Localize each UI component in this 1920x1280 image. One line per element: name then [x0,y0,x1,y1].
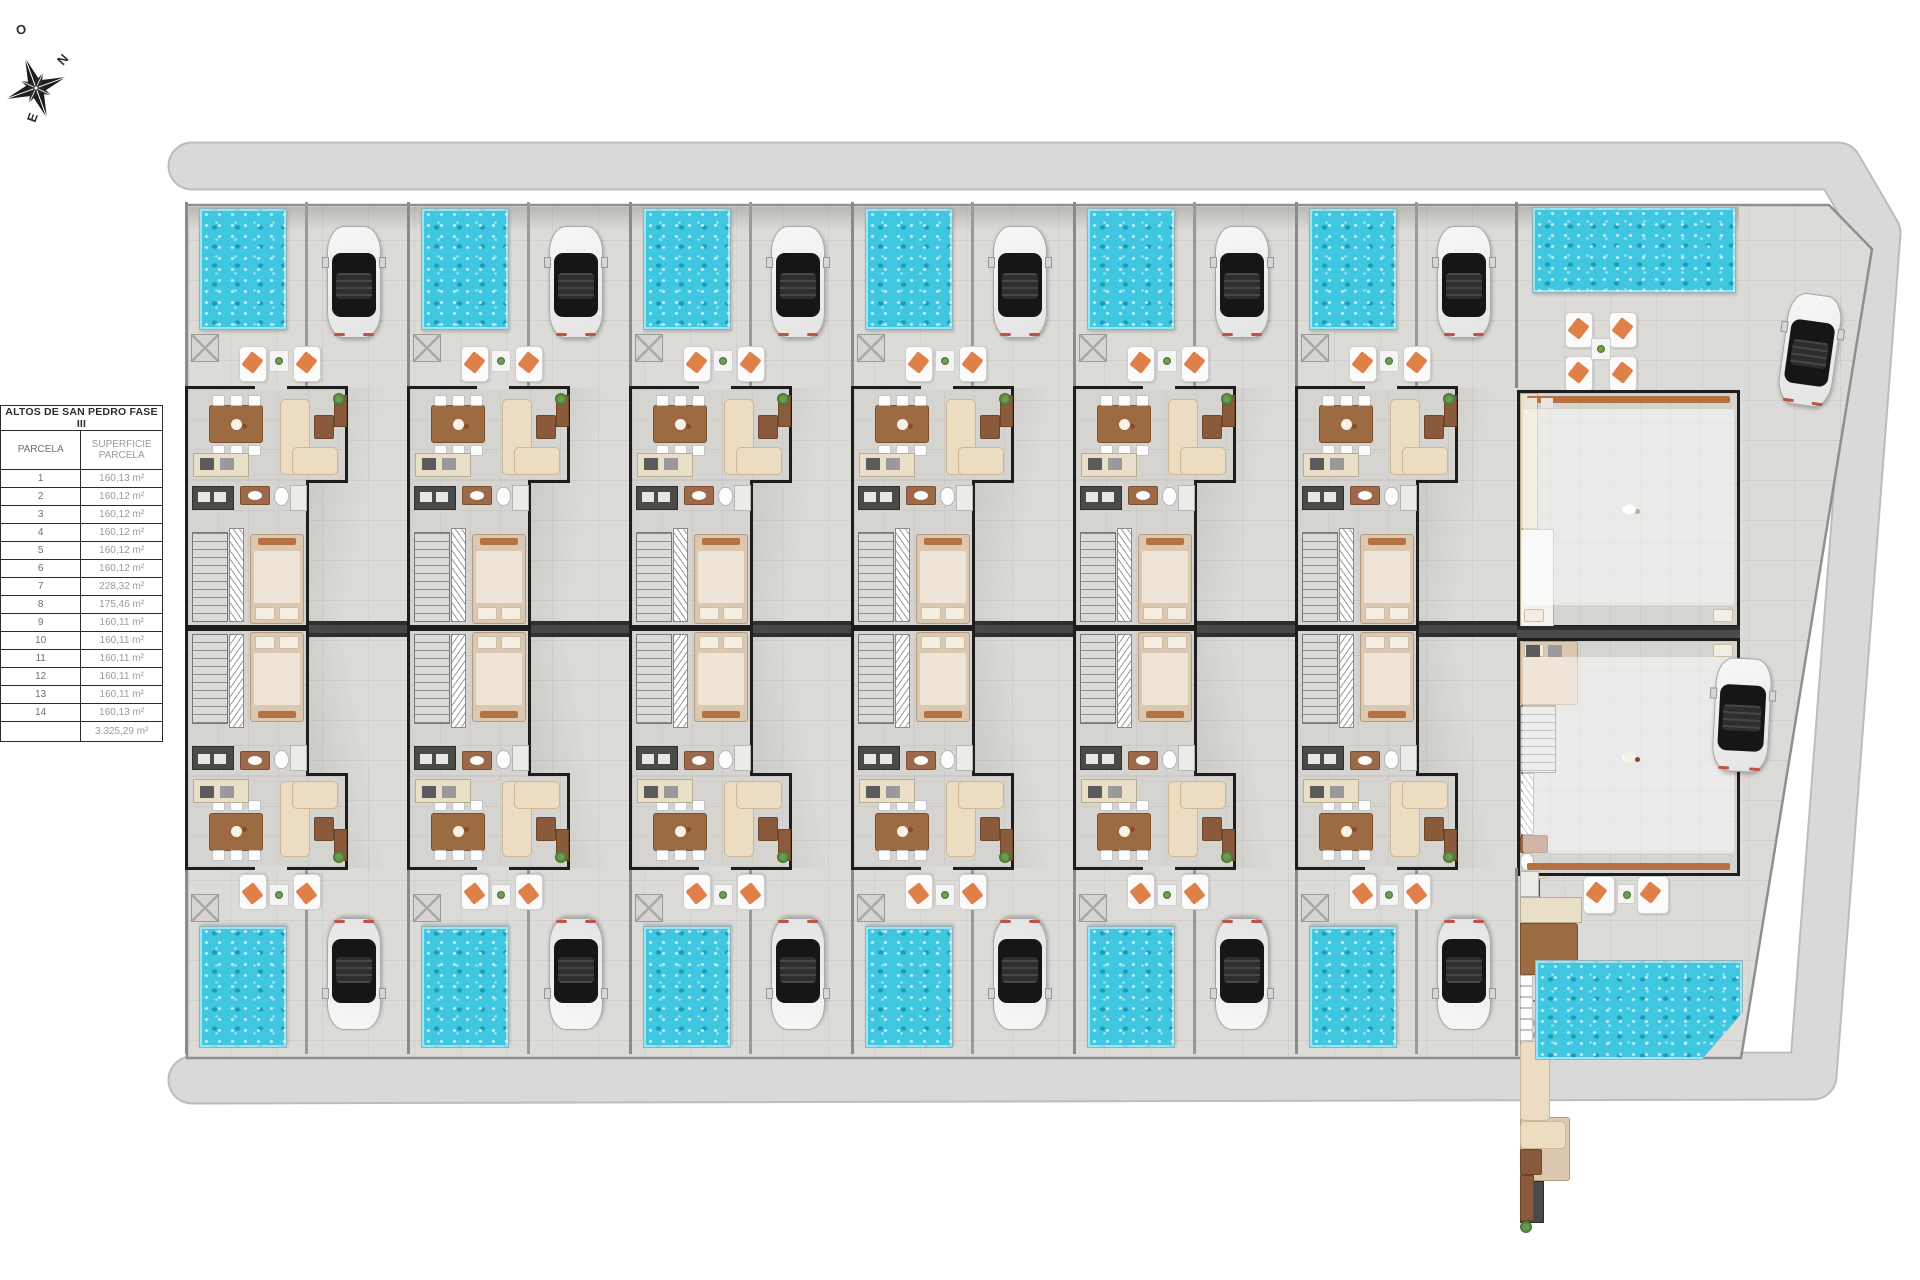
bathroom-vanity [1350,751,1380,770]
sun-lounger [1127,874,1155,910]
double-bed [1360,534,1414,624]
parcel-area: 160,12 m² [81,506,163,524]
chair [1100,850,1113,861]
bed-bath-area [407,628,531,776]
parcel-number: 13 [1,686,81,704]
chair [674,395,687,406]
closet [636,486,678,510]
parcel-side-wall [185,202,188,388]
chair [248,850,261,861]
sun-lounger [293,874,321,910]
stair-hatch [451,528,466,622]
closet [414,486,456,510]
chair [248,800,261,811]
shower [512,485,529,511]
car-taillight-icon [778,333,789,336]
car-mirror-icon [544,257,551,268]
kitchen-counter [193,779,249,803]
pillow [945,636,965,649]
living-room [1295,386,1458,483]
parcel-number: 3 [1,506,81,524]
empty-cell [1,722,81,742]
patio-side-table [1617,884,1635,904]
closet [1302,746,1344,770]
chair [230,850,243,861]
pillow [1365,607,1385,620]
sofa [958,781,1004,809]
double-bed [694,632,748,722]
bed-bath-area [629,480,753,628]
outdoor-shower [1079,894,1107,922]
sun-lounger [1403,346,1431,382]
swimming-pool [199,208,287,330]
chair [914,395,927,406]
sofa [736,781,782,809]
towel-icon [1405,882,1427,905]
entrance-door-gap [1365,866,1397,870]
toilet [1384,750,1399,769]
car-mirror-icon [1432,257,1439,268]
living-room [1073,773,1236,870]
bed-bath-area [185,480,309,628]
bathroom-vanity [462,751,492,770]
patio-side-table [269,350,289,372]
coffee-table [314,817,334,841]
shower [1400,485,1417,511]
towel-icon [1351,882,1373,905]
bathroom-vanity [684,751,714,770]
shower [1178,745,1195,771]
pillow [279,607,299,620]
chair [674,850,687,861]
table-row: 6160,12 m² [1,560,163,578]
kitchen-counter [1303,779,1359,803]
chair [896,395,909,406]
sun-lounger [905,346,933,382]
swimming-pool [865,208,953,330]
chair [692,445,705,456]
living-room [629,386,792,483]
table-row: 2160,12 m² [1,488,163,506]
closet [192,486,234,510]
chair [1520,1008,1533,1019]
bed-bench [1368,711,1406,718]
bed-bench [1146,538,1184,545]
coffee-table [980,817,1000,841]
car-roof [1446,273,1482,299]
chair [1118,850,1131,861]
car-mirror-icon [379,257,386,268]
double-bed [1138,534,1192,624]
parcel-side-wall [851,868,854,1054]
towel-icon [517,351,539,374]
bed-bath-area [185,628,309,776]
towel-icon [907,351,929,374]
table-row: 8175,46 m² [1,596,163,614]
sun-lounger [683,346,711,382]
coffee-table [1424,817,1444,841]
villa-unit [851,628,1073,1056]
car-mirror-icon [766,257,773,268]
chair [1520,1030,1533,1041]
villa7-interior [1517,390,1740,628]
outdoor-shower [413,894,441,922]
parcel-number: 8 [1,596,81,614]
villa-unit [1073,628,1295,1056]
bed-bench [480,711,518,718]
outdoor-shower [191,334,219,362]
car-roof [336,273,372,299]
entrance-door-gap [1365,386,1397,390]
stairs [192,532,228,622]
car-taillight-icon [585,333,596,336]
plant-icon [1443,393,1455,405]
parcel-side-wall [407,202,410,388]
parcel-number: 6 [1,560,81,578]
swimming-pool [421,208,509,330]
sun-lounger [1349,874,1377,910]
chair [914,800,927,811]
towel-icon [1183,882,1205,905]
car-mirror-icon [766,988,773,999]
bathroom-vanity [240,486,270,505]
villa-unit [185,628,407,1056]
stair-hatch [1339,528,1354,622]
kitchen-counter [637,453,693,477]
villa-unit [1073,200,1295,628]
villa-unit [407,628,629,1056]
pillow [1167,607,1187,620]
bed-bath-area [1295,480,1419,628]
sun-lounger [1565,356,1593,392]
parcel-side-wall [185,868,188,1054]
stair-hatch [895,528,910,622]
plant-icon [333,851,345,863]
car-mirror-icon [988,988,995,999]
closet [1080,746,1122,770]
car-taillight-icon [1000,920,1011,923]
car-mirror-icon [823,988,830,999]
bed-bath-area [1295,628,1419,776]
sun-lounger [1181,346,1209,382]
chair [1520,1019,1533,1030]
living-room [851,773,1014,870]
parcel-area: 160,11 m² [81,668,163,686]
villa-unit [407,200,629,628]
coffee-table [758,415,778,439]
car-mirror-icon [1210,257,1217,268]
chair [1136,395,1149,406]
car-taillight-icon [363,920,374,923]
stair-hatch [895,634,910,728]
chair [878,395,891,406]
kitchen-counter [637,779,693,803]
chair [1358,800,1371,811]
car-top-view [1215,918,1269,1030]
stairs [636,532,672,622]
sun-lounger [905,874,933,910]
entrance-door-gap [921,386,953,390]
villa-column [407,200,629,1056]
towel-icon [685,351,707,374]
car-taillight-icon [556,920,567,923]
car-top-view [549,226,603,338]
towel-icon [463,351,485,374]
towel-icon [517,882,539,905]
parcel-side-wall [407,868,410,1054]
pillow [501,636,521,649]
toilet [1384,487,1399,506]
car-roof [1002,957,1038,983]
car-taillight-icon [807,920,818,923]
towel-icon [739,882,761,905]
patio-side-table [1157,884,1177,906]
bed-bench [702,711,740,718]
pillow [1365,636,1385,649]
car-mirror-icon [1045,988,1052,999]
table-total-row: 3.325,29 m² [1,722,163,742]
chair [692,800,705,811]
plant-icon [555,851,567,863]
pillow [723,607,743,620]
bed-bench [702,538,740,545]
car-roof [1002,273,1038,299]
chair [470,850,483,861]
table-row: 7228,32 m² [1,578,163,596]
villa-column [851,200,1073,1056]
coffee-table [1202,415,1222,439]
sun-lounger [1637,876,1669,914]
parcel-number: 4 [1,524,81,542]
car-roof [1224,273,1260,299]
car-mirror-icon [1267,257,1274,268]
stairs [192,634,228,724]
patio-side-table [491,350,511,372]
car-top-view [327,226,381,338]
sun-lounger [515,874,543,910]
parcel-table: ALTOS DE SAN PEDRO FASE III PARCELA SUPE… [0,405,163,742]
sun-lounger [1565,312,1593,348]
entrance-door-gap [921,866,953,870]
dining-table [431,813,485,851]
stair-hatch [229,634,244,728]
car-top-view [1215,226,1269,338]
outdoor-shower [191,894,219,922]
chair [1118,395,1131,406]
bed-bath-area [851,628,975,776]
double-bed [1360,632,1414,722]
living-room [185,773,348,870]
table-row: 3160,12 m² [1,506,163,524]
closet [858,486,900,510]
patio-side-table [1157,350,1177,372]
parcel-number: 9 [1,614,81,632]
shower [956,745,973,771]
car-roof [558,273,594,299]
villa-column [1073,200,1295,1056]
parcel-side-wall [1073,202,1076,388]
shower [734,485,751,511]
parcel-area: 160,12 m² [81,488,163,506]
swimming-pool [421,926,509,1048]
sofa [514,447,560,475]
living-room [629,773,792,870]
shower [512,745,529,771]
plant-icon [555,393,567,405]
chair [1520,986,1533,997]
toilet [718,487,733,506]
towel-icon [241,351,263,374]
parcel-side-wall [629,868,632,1054]
towel-icon [295,882,317,905]
car-top-view [771,918,825,1030]
dining-table [1097,813,1151,851]
sofa [514,781,560,809]
parcel-area: 160,12 m² [81,560,163,578]
sun-lounger [239,874,267,910]
sun-lounger [515,346,543,382]
swimming-pool [1535,960,1743,1060]
table-row: 9160,11 m² [1,614,163,632]
pillow [1143,607,1163,620]
bathroom-vanity [462,486,492,505]
swimming-pool [865,926,953,1048]
car-top-view [1437,226,1491,338]
car-mirror-icon [601,988,608,999]
kitchen-counter [415,779,471,803]
villa-unit [1295,628,1517,1056]
double-bed [916,534,970,624]
double-bed [472,534,526,624]
stair-hatch [673,528,688,622]
parcel-number: 7 [1,578,81,596]
chair [248,395,261,406]
plant-icon [999,393,1011,405]
car-top-view [771,226,825,338]
compass-rose: O N E [0,10,110,140]
villa-column [629,200,851,1056]
shower [290,485,307,511]
parcel-side-wall [1295,868,1298,1054]
closet [1080,486,1122,510]
bathroom-vanity [1350,486,1380,505]
chair [470,395,483,406]
towel-icon [1183,351,1205,374]
villa-unit [851,200,1073,628]
parcel-area: 160,11 m² [81,632,163,650]
car-taillight-icon [807,333,818,336]
sofa [736,447,782,475]
parcel-number: 11 [1,650,81,668]
villa8-interior [1517,638,1740,876]
plant-icon [1221,851,1233,863]
towel-icon [1129,351,1151,374]
patio-side-table [269,884,289,906]
car-taillight-icon [334,333,345,336]
kitchen-counter [1081,453,1137,477]
chair [470,800,483,811]
double-bed [694,534,748,624]
parcel-area: 160,12 m² [81,524,163,542]
swimming-pool [1087,926,1175,1048]
car-top-view [993,226,1047,338]
living-room [407,386,570,483]
car-top-view [993,918,1047,1030]
stairs [1080,532,1116,622]
car-mirror-icon [601,257,608,268]
chair [1358,395,1371,406]
toilet [940,750,955,769]
chair [878,850,891,861]
pillow [921,607,941,620]
parcel-number: 5 [1,542,81,560]
swimming-pool [643,208,731,330]
sofa [292,447,338,475]
toilet [496,487,511,506]
car-top-view [1437,918,1491,1030]
bed-bench [258,538,296,545]
stair-hatch [451,634,466,728]
chair [1100,395,1113,406]
swimming-pool [1309,208,1397,330]
chair [914,850,927,861]
sun-lounger [737,346,765,382]
entrance-door-gap [1143,386,1175,390]
pillow [1389,636,1409,649]
kitchen-counter [415,453,471,477]
towel-icon [463,882,485,905]
double-bed [916,632,970,722]
sun-lounger [959,874,987,910]
swimming-pool [1532,207,1736,293]
stair-hatch [1339,634,1354,728]
bed-bath-area [1073,628,1197,776]
car-mirror-icon [823,257,830,268]
car-taillight-icon [363,333,374,336]
chair [1358,445,1371,456]
kitchen-counter [1081,779,1137,803]
car-mirror-icon [1432,988,1439,999]
closet [858,746,900,770]
double-bed [250,534,304,624]
kitchen-counter [1520,897,1582,923]
closet [1302,486,1344,510]
pillow [1167,636,1187,649]
pillow [723,636,743,649]
patio-side-table [935,350,955,372]
dining-table [209,405,263,443]
outdoor-shower [1301,334,1329,362]
table-title-row: ALTOS DE SAN PEDRO FASE III [1,406,163,431]
shower [956,485,973,511]
living-room [851,386,1014,483]
outdoor-shower [857,894,885,922]
coffee-table [758,817,778,841]
table-row: 10160,11 m² [1,632,163,650]
parcel-area: 228,32 m² [81,578,163,596]
car-mirror-icon [1267,988,1274,999]
towel-icon [739,351,761,374]
sofa [292,781,338,809]
parcel-side-wall [1295,202,1298,388]
table-row: 11160,11 m² [1,650,163,668]
plant-icon [999,851,1011,863]
dining-table [653,405,707,443]
patio-side-table [935,884,955,906]
car-taillight-icon [1444,920,1455,923]
stairs [414,532,450,622]
swimming-pool [643,926,731,1048]
